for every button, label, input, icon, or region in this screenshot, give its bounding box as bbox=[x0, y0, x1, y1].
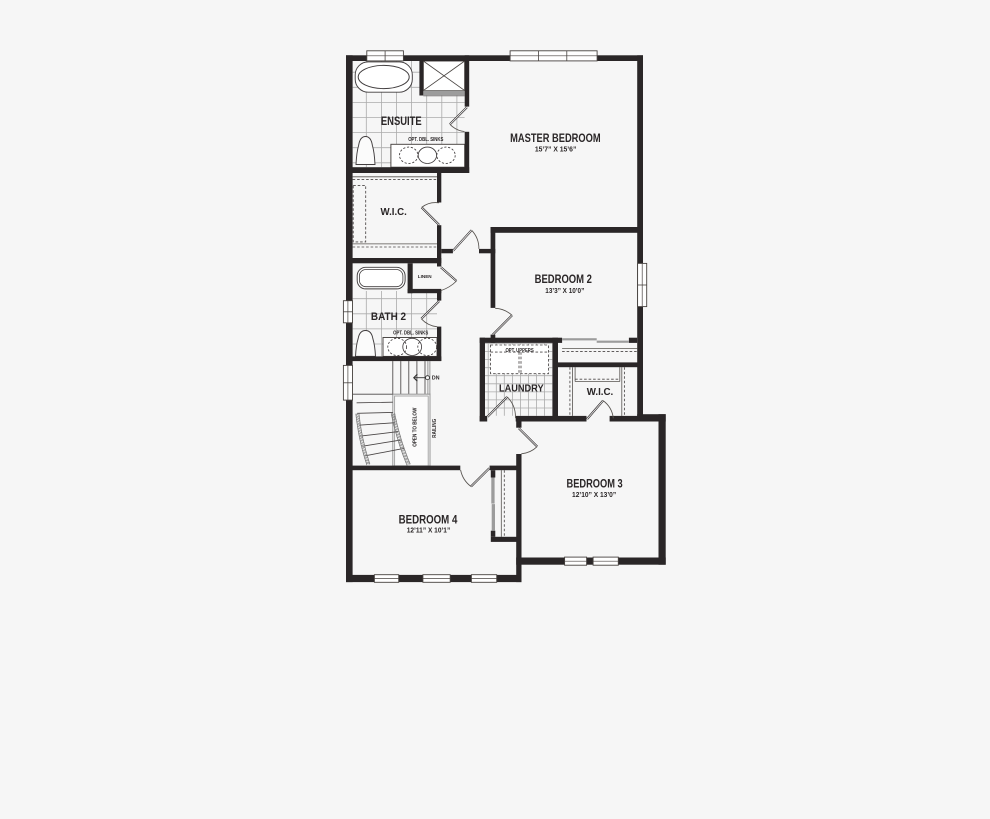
svg-text:OPT. UPPERS: OPT. UPPERS bbox=[505, 348, 534, 354]
svg-text:ENSUITE: ENSUITE bbox=[381, 115, 422, 128]
svg-text:RAILING: RAILING bbox=[432, 418, 438, 438]
svg-text:15’7” X 15’6”: 15’7” X 15’6” bbox=[535, 145, 577, 154]
svg-text:BEDROOM 2: BEDROOM 2 bbox=[535, 273, 592, 286]
svg-text:OPT. DBL. SINKS: OPT. DBL. SINKS bbox=[408, 137, 444, 143]
svg-text:W.I.C.: W.I.C. bbox=[381, 207, 408, 218]
svg-text:MASTER BEDROOM: MASTER BEDROOM bbox=[510, 132, 601, 145]
svg-text:W.I.C.: W.I.C. bbox=[587, 387, 614, 398]
svg-text:BEDROOM 4: BEDROOM 4 bbox=[399, 513, 458, 526]
svg-text:BATH 2: BATH 2 bbox=[371, 311, 406, 323]
svg-text:13’3” X 10’0”: 13’3” X 10’0” bbox=[545, 286, 584, 295]
svg-text:OPEN TO BELOW: OPEN TO BELOW bbox=[412, 407, 418, 447]
svg-text:LINEN: LINEN bbox=[418, 274, 432, 280]
svg-text:LAUNDRY: LAUNDRY bbox=[499, 382, 544, 394]
svg-text:DN: DN bbox=[432, 376, 440, 382]
svg-text:12’10” X 13’0”: 12’10” X 13’0” bbox=[572, 490, 616, 499]
svg-text:OPT. DBL. SINKS: OPT. DBL. SINKS bbox=[393, 330, 429, 336]
svg-text:BEDROOM 3: BEDROOM 3 bbox=[567, 477, 624, 490]
svg-text:12’11” X 10’1”: 12’11” X 10’1” bbox=[407, 526, 451, 535]
